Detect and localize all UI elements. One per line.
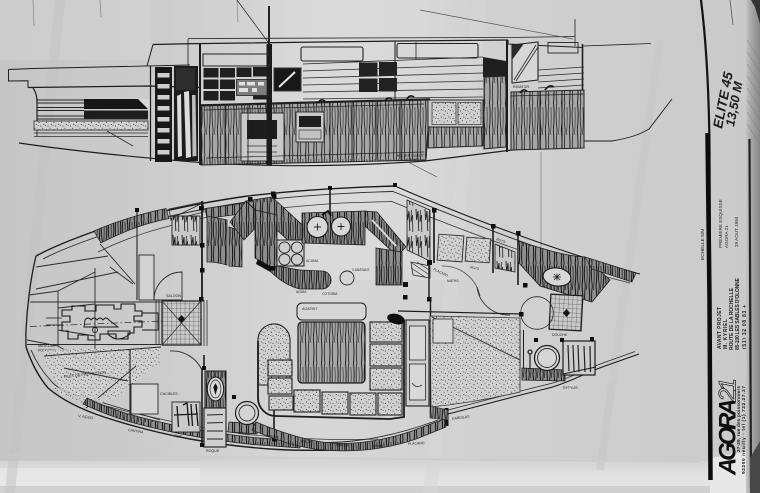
svg-text:DOUCHE: DOUCHE: [552, 333, 568, 337]
svg-text:29 AOUT 1984: 29 AOUT 1984: [734, 216, 739, 247]
svg-text:COTOIRA: COTOIRA: [322, 292, 338, 296]
svg-text:MATELAS: MATELAS: [38, 344, 55, 348]
svg-text:ACUMA: ACUMA: [306, 259, 319, 263]
svg-text:LOCASTAINE: LOCASTAINE: [396, 158, 419, 162]
svg-text:RYTYUS: RYTYUS: [563, 386, 578, 390]
svg-text:AGATINT: AGATINT: [302, 307, 318, 311]
svg-text:MATHS: MATHS: [447, 279, 459, 283]
svg-text:SALOON: SALOON: [166, 294, 181, 298]
svg-text:V.ABATANT: V.ABATANT: [352, 268, 370, 272]
svg-text:ROQUE: ROQUE: [206, 449, 220, 453]
svg-text:85-100 LES SABLES D'OLONNE: 85-100 LES SABLES D'OLONNE: [735, 277, 741, 350]
svg-text:PREMIERE ESQUISSE: PREMIERE ESQUISSE: [718, 199, 723, 248]
svg-text:MIROIR: MIROIR: [372, 444, 385, 448]
svg-text:RIGATOR: RIGATOR: [513, 85, 529, 89]
svg-text:AGUIA: AGUIA: [296, 290, 307, 294]
svg-text:MIROIR: MIROIR: [336, 443, 349, 448]
svg-text:AGORA 21: AGORA 21: [724, 225, 729, 248]
svg-text:ECHELLE 5/M: ECHELLE 5/M: [700, 229, 706, 260]
svg-text:CACIBLES .: CACIBLES .: [160, 392, 180, 396]
